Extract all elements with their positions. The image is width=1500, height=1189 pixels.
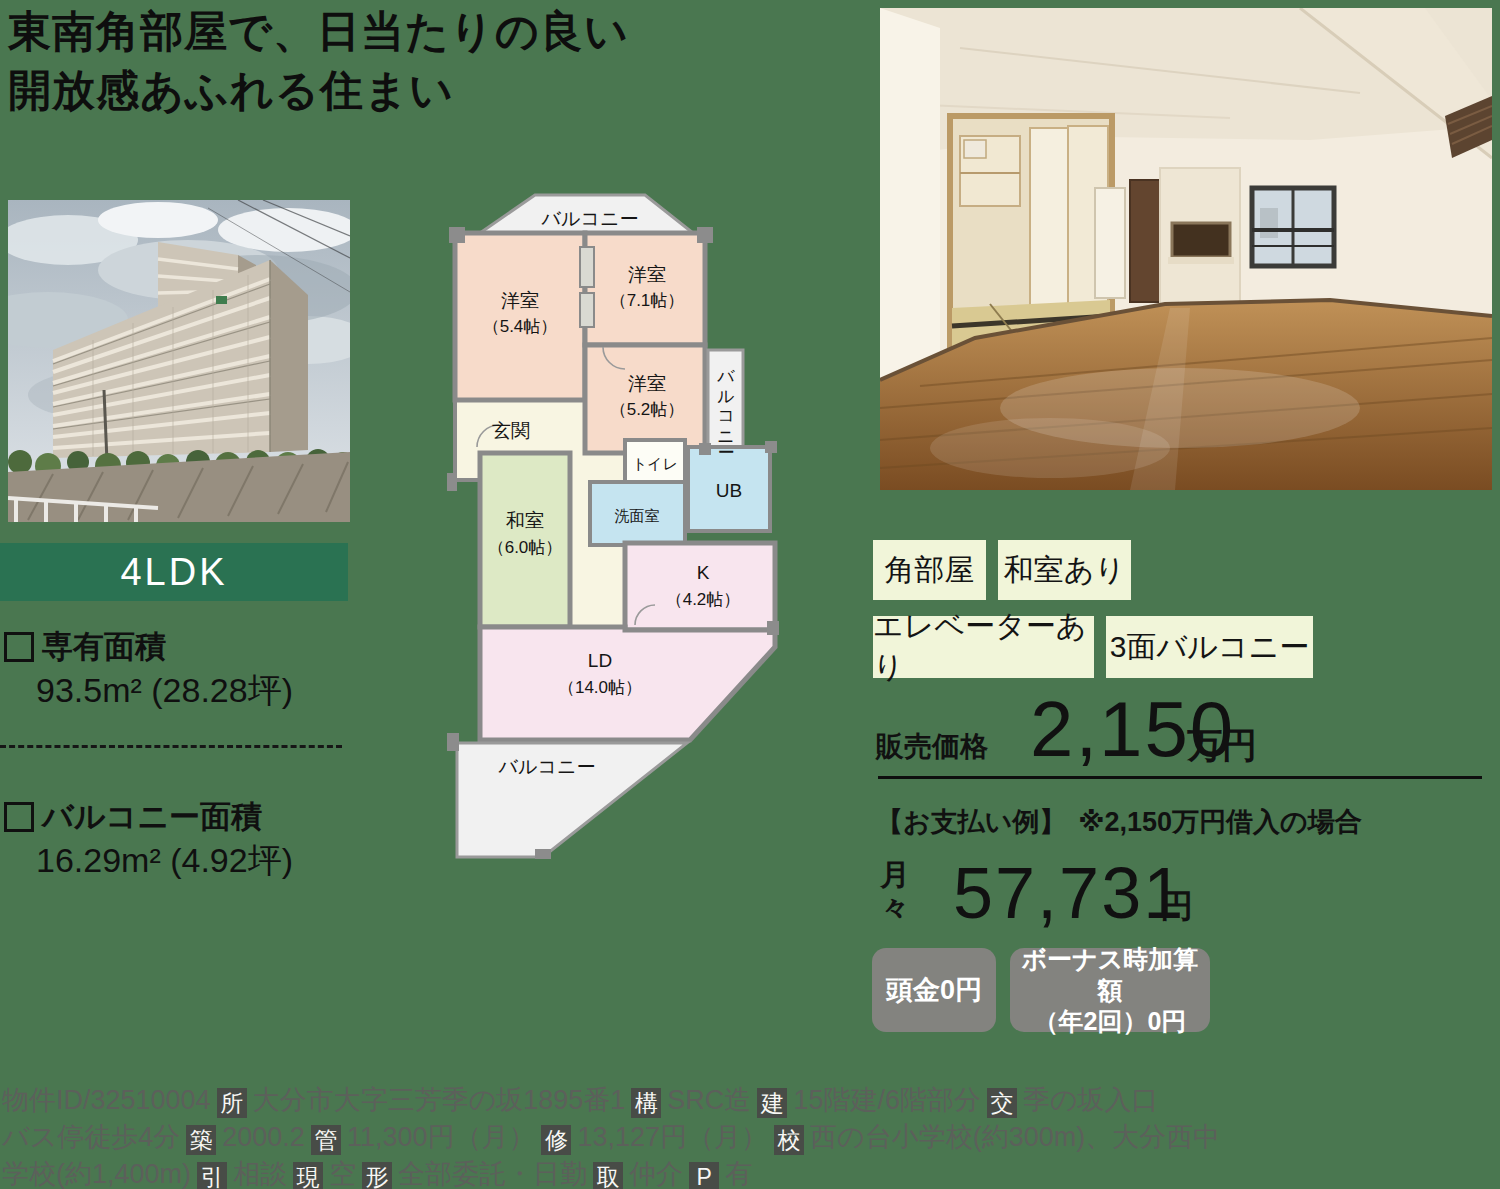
plan-kitchen-name: K (697, 562, 710, 583)
bonus-badge-line2: （年2回）0円 (1034, 1006, 1187, 1037)
payment-note: ※2,150万円借入の場合 (1078, 807, 1361, 837)
headline: 東南角部屋で、日当たりの良い開放感あふれる住まい (8, 2, 629, 120)
fineprint-text: 13,127円（月） (577, 1122, 768, 1152)
down-payment-badge-label: 頭金0円 (886, 972, 982, 1008)
plan-toilet-label: トイレ (632, 455, 678, 472)
balcony-area-label-text: バルコニー面積 (42, 796, 262, 838)
plan-balcony-top-label: バルコニー (541, 208, 639, 229)
feature-tag-label: 角部屋 (885, 550, 975, 591)
square-icon (4, 802, 34, 832)
flyer-page: 東南角部屋で、日当たりの良い開放感あふれる住まい (0, 0, 1500, 1189)
plan-washroom-label: 洗面室 (615, 507, 660, 524)
square-icon (4, 632, 34, 662)
plan-living-size: （14.0帖） (558, 678, 642, 697)
fineprint-text: 全部委託・日勤 (398, 1159, 587, 1189)
plan-bath-label: UB (716, 480, 742, 501)
feature-tag-balcony: 3面バルコニー (1106, 616, 1313, 678)
fineprint-text: 15階建/6階部分 (793, 1085, 981, 1115)
plan-bed1-size: （5.4帖） (483, 317, 558, 336)
fineprint-category-badge: 建 (757, 1088, 787, 1118)
monthly-char2: 々 (880, 891, 910, 924)
fineprint-category-badge: 引 (197, 1162, 227, 1189)
fineprint-category-badge: 交 (987, 1088, 1017, 1118)
fineprint-text: 相談 (233, 1159, 287, 1189)
fineprint-category-badge: 築 (186, 1125, 216, 1155)
feature-tag-corner-room: 角部屋 (873, 540, 986, 600)
plan-living-name: LD (588, 650, 612, 671)
price-underline (878, 776, 1482, 779)
fineprint-category-badge: 所 (217, 1088, 247, 1118)
plan-entrance-label: 玄関 (492, 420, 530, 441)
payment-header-label: 【お支払い例】 (876, 807, 1066, 837)
plan-tatami-name: 和室 (506, 510, 544, 531)
plan-bed2-name: 洋室 (628, 264, 666, 285)
fineprint-text: 物件ID/32510004 (2, 1085, 211, 1115)
feature-tag-japanese-room: 和室あり (998, 540, 1131, 600)
payment-example-header: 【お支払い例】※2,150万円借入の場合 (876, 804, 1362, 840)
fineprint-category-badge: P (689, 1162, 719, 1189)
fineprint-line: バス停徒歩4分築2000.2管11,300円（月）修13,127円（月）校西の台… (2, 1119, 1498, 1156)
interior-photo (880, 8, 1492, 490)
layout-type-badge: 4LDK (0, 543, 348, 601)
building-exterior-photo (8, 200, 350, 522)
feature-tag-label: 和室あり (1004, 550, 1125, 591)
feature-tag-label: エレベーターあり (873, 606, 1094, 688)
fineprint-text: 仲介 (629, 1159, 683, 1189)
fineprint-category-badge: 構 (631, 1088, 661, 1118)
fineprint-line: 物件ID/32510004所大分市大字三芳季の坂1895番1構SRC造建15階建… (2, 1082, 1498, 1119)
monthly-label: 月 々 (880, 858, 910, 924)
fineprint-text: 季の坂入口 (1023, 1085, 1159, 1115)
fineprint-text: 大分市大字三芳季の坂1895番1 (253, 1085, 626, 1115)
headline-line2: 開放感あふれる住まい (8, 65, 454, 115)
plan-bed1-name: 洋室 (501, 290, 539, 311)
feature-tag-label: 3面バルコニー (1110, 627, 1310, 668)
down-payment-badge: 頭金0円 (872, 948, 996, 1032)
plan-bed3-size: （5.2帖） (610, 400, 685, 419)
plan-balcony-bottom-label: バルコニー (498, 756, 596, 777)
price-label: 販売価格 (876, 728, 988, 766)
fineprint-category-badge: 管 (311, 1125, 341, 1155)
fineprint-text: 有 (725, 1159, 752, 1189)
bonus-payment-badge: ボーナス時加算額 （年2回）0円 (1010, 948, 1210, 1032)
fineprint-text: 学校(約1,400m) (2, 1159, 191, 1189)
fine-print: 物件ID/32510004所大分市大字三芳季の坂1895番1構SRC造建15階建… (2, 1082, 1498, 1189)
plan-kitchen-size: （4.2帖） (666, 590, 741, 609)
fineprint-text: 2000.2 (222, 1122, 305, 1152)
monthly-char1: 月 (880, 858, 910, 891)
exclusive-area-label-text: 専有面積 (42, 626, 166, 668)
fineprint-category-badge: 取 (593, 1162, 623, 1189)
plan-tatami-size: （6.0帖） (488, 538, 563, 557)
monthly-unit: 円 (1160, 884, 1193, 929)
plan-bed3-name: 洋室 (628, 373, 666, 394)
price-unit: 万円 (1187, 722, 1257, 769)
fineprint-category-badge: 修 (541, 1125, 571, 1155)
fineprint-text: バス停徒歩4分 (2, 1122, 180, 1152)
monthly-amount: 57,731 (953, 852, 1185, 934)
fineprint-text: 11,300円（月） (347, 1122, 536, 1152)
fineprint-category-badge: 形 (362, 1162, 392, 1189)
fineprint-text: 西の台小学校(約300m)、大分西中 (810, 1122, 1220, 1152)
dashed-divider (0, 745, 342, 748)
fineprint-category-badge: 現 (293, 1162, 323, 1189)
plan-balcony-right-label: バルコニー (716, 357, 735, 453)
layout-type-label: 4LDK (120, 551, 227, 594)
balcony-area-label: バルコニー面積 (4, 796, 262, 838)
floor-plan: バルコニー (435, 185, 835, 860)
fineprint-category-badge: 校 (774, 1125, 804, 1155)
balcony-area-value: 16.29m² (4.92坪) (36, 838, 293, 884)
fineprint-text: SRC造 (667, 1085, 751, 1115)
exclusive-area-label: 専有面積 (4, 626, 166, 668)
fineprint-line: 学校(約1,400m)引相談現空形全部委託・日勤取仲介P有 (2, 1156, 1498, 1189)
headline-line1: 東南角部屋で、日当たりの良い (8, 6, 629, 56)
fineprint-text: 空 (329, 1159, 356, 1189)
feature-tag-elevator: エレベーターあり (873, 616, 1094, 678)
exclusive-area-value: 93.5m² (28.28坪) (36, 668, 293, 714)
bonus-badge-line1: ボーナス時加算額 (1010, 944, 1210, 1006)
plan-bed2-size: （7.1帖） (610, 291, 685, 310)
